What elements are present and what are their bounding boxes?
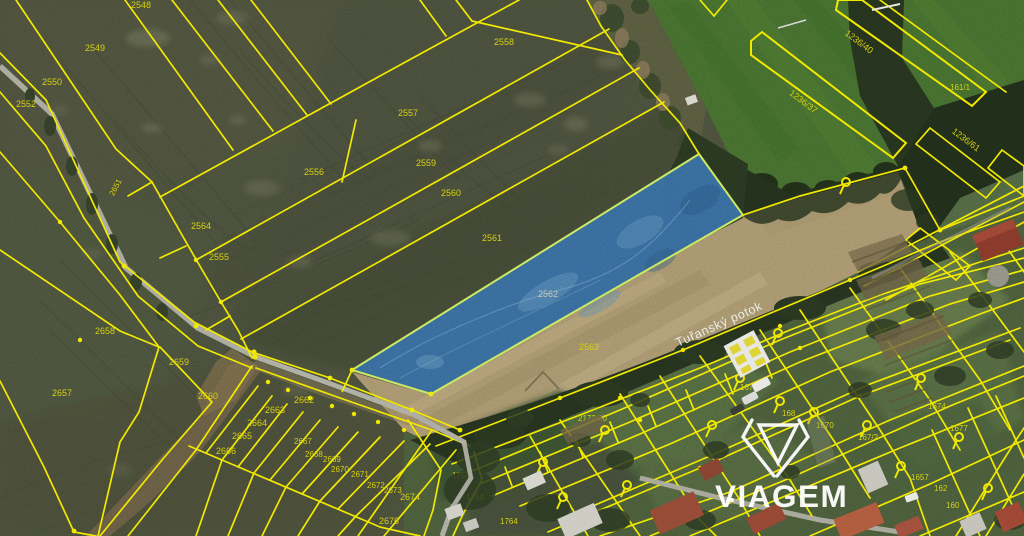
svg-text:VIAGEM: VIAGEM	[715, 478, 848, 514]
